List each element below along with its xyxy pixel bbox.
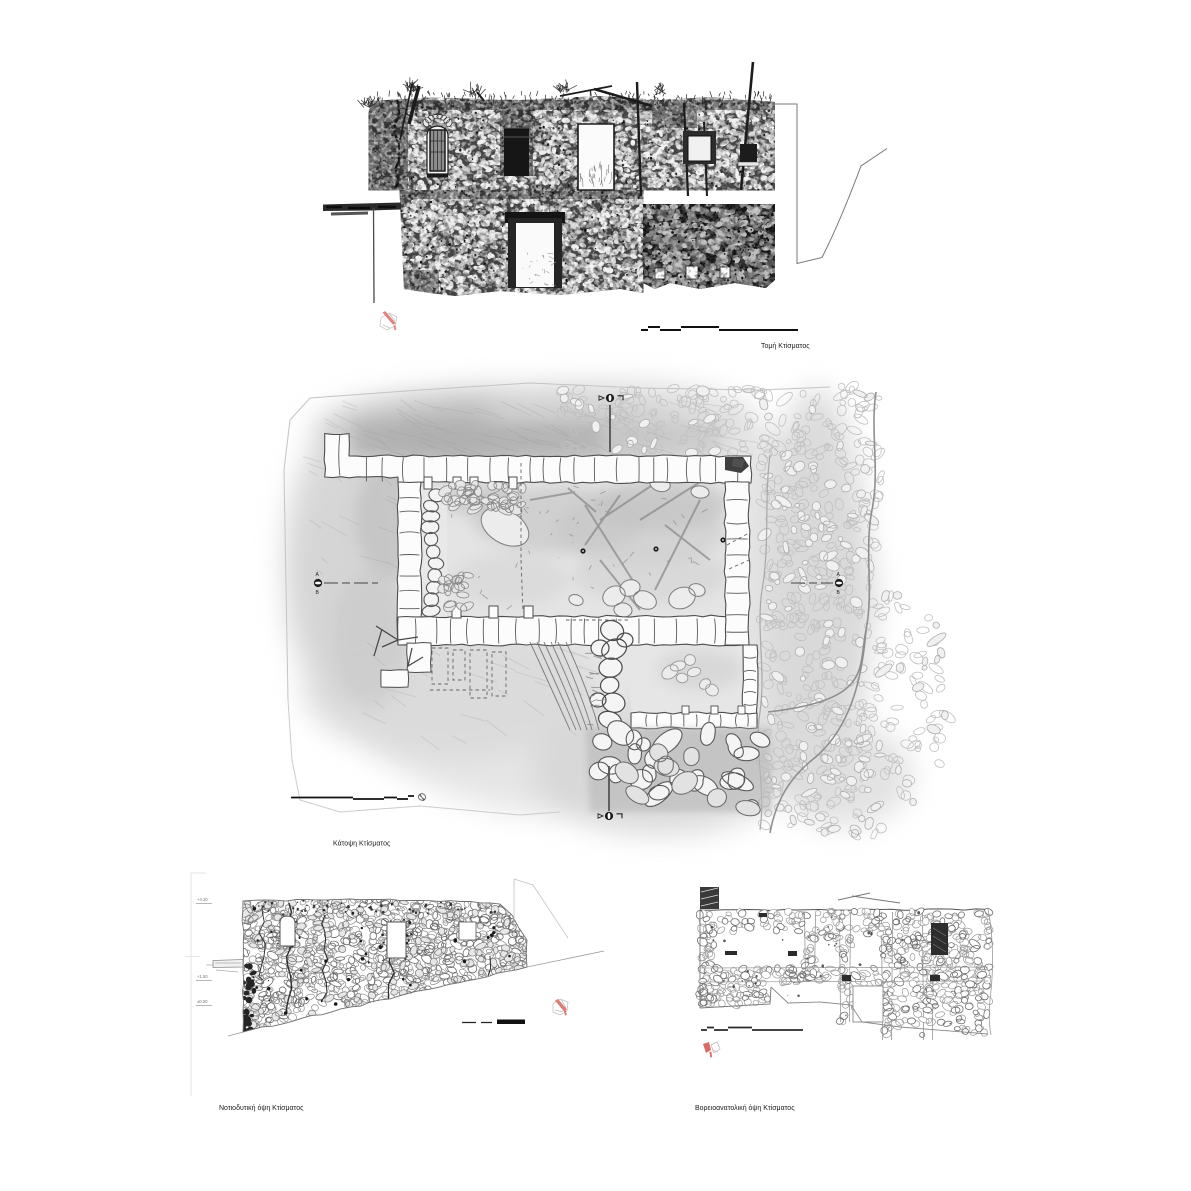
svg-text:+1.50: +1.50 [197, 974, 208, 979]
svg-text:Νοτιοδυτική όψη Κτίσματος: Νοτιοδυτική όψη Κτίσματος [219, 1104, 304, 1112]
svg-text:+4.20: +4.20 [197, 897, 208, 902]
svg-text:±0.00: ±0.00 [197, 999, 208, 1004]
svg-text:Τομή Κτίσματος: Τομή Κτίσματος [761, 342, 810, 350]
svg-text:Βορειοανατολική όψη Κτίσματος: Βορειοανατολική όψη Κτίσματος [695, 1104, 795, 1112]
svg-text:Κάτοψη Κτίσματος: Κάτοψη Κτίσματος [333, 840, 391, 848]
